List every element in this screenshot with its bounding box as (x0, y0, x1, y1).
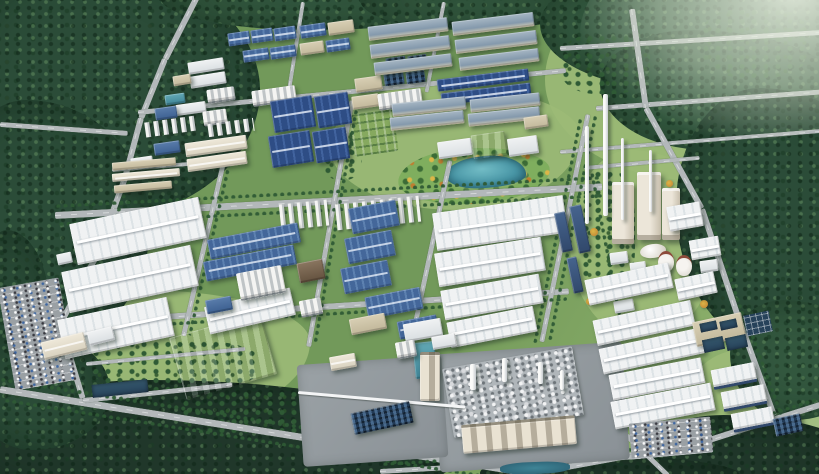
blue-hall-n2 (250, 28, 274, 44)
navy-megahall-3 (268, 130, 314, 168)
plant-stack-s2 (502, 358, 507, 382)
navy-megahall-4 (312, 127, 351, 164)
lakefront-gable-hall (470, 131, 507, 159)
aeration-basin-1 (702, 336, 725, 353)
cooling-tower-2 (676, 255, 692, 276)
plant-stack-s3 (538, 362, 543, 384)
tan-hall-center-s (349, 313, 387, 336)
process-unit-cement-1 (609, 251, 628, 265)
silo-column-bank-sc (420, 352, 440, 401)
navy-megahall-1 (270, 95, 316, 133)
autumn-tree-cement-1 (590, 228, 598, 236)
chimney-stack-main (603, 94, 608, 216)
blue-hall-n6 (299, 22, 327, 38)
plant-stack-s1 (470, 364, 476, 390)
autumn-tree-cement-3 (700, 300, 708, 308)
plant-stack-s4 (560, 370, 564, 390)
chimney-stack-4 (649, 150, 652, 212)
parking-lot-southeast-cars (629, 416, 714, 459)
blue-hall-n7 (325, 37, 350, 52)
steel-blue-hall-b2 (344, 230, 396, 265)
chimney-stack-3 (621, 138, 624, 220)
blue-hall-n4 (242, 47, 269, 63)
industrial-park-aerial-render (0, 0, 819, 474)
tank-pair-sc (395, 339, 418, 359)
chimney-stack-2 (585, 126, 589, 224)
autumn-tree-cement-4 (666, 180, 673, 187)
steel-blue-hall-b3 (340, 260, 392, 295)
south-pond (500, 461, 570, 474)
blue-hall-n3 (273, 26, 297, 42)
navy-megahall-2 (314, 92, 353, 129)
tan-hall-n1 (327, 19, 355, 35)
tan-hall-n2 (299, 40, 324, 55)
